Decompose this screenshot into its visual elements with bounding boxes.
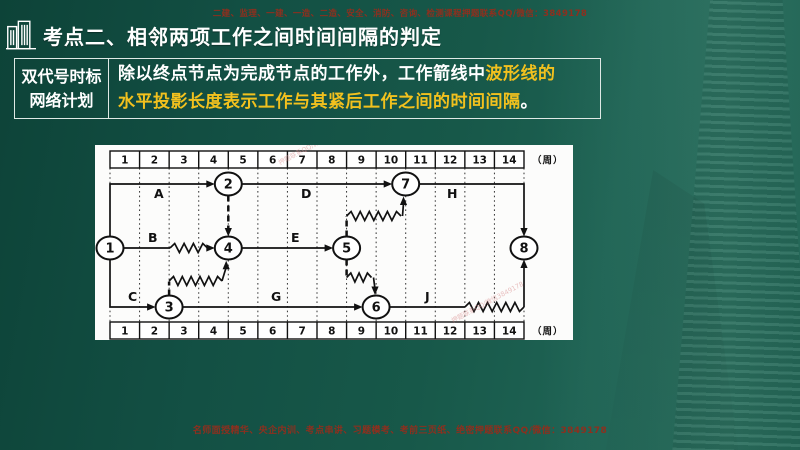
week-number: 5 [239,155,246,167]
node-number-1: 1 [105,242,114,257]
node-number-7: 7 [401,178,410,193]
week-number: 13 [472,155,487,167]
edge-E [242,244,333,251]
week-number: 14 [502,155,517,167]
week-number: 3 [180,326,187,338]
arrowhead-icon [354,303,363,310]
definition-line1: 除以终点节点为完成节点的工作外，工作箭线中波形线的 [118,61,591,89]
arrowhead-icon [325,244,334,251]
network-diagram-panel: 1234567891011121314（周）123456789101112131… [95,145,573,340]
node-number-2: 2 [224,178,233,193]
definition-line2-highlight: 水平投影长度表示工作与其紧后工作之间的时间间隔 [118,92,521,112]
edge-link-3-4 [169,261,230,296]
week-number: 11 [413,326,428,338]
activity-label-B: B [148,230,158,245]
definition-line2: 水平投影长度表示工作与其紧后工作之间的时间间隔。 [118,89,591,117]
week-number: 5 [239,326,246,338]
arrowhead-icon [371,287,378,296]
week-number: 14 [502,326,517,338]
activity-label-A: A [154,186,164,201]
definition-cell: 除以终点节点为完成节点的工作外，工作箭线中波形线的 水平投影长度表示工作与其紧后… [109,59,600,118]
definition-line2-period: 。 [521,92,539,112]
unit-label: （周） [532,326,564,338]
definition-line1-plain: 除以终点节点为完成节点的工作外，工作箭线中 [118,64,486,84]
arrowhead-icon [206,244,215,251]
definition-line1-highlight: 波形线的 [486,64,556,84]
arrowhead-icon [206,180,215,187]
week-number: 12 [443,326,458,338]
week-number: 4 [210,155,217,167]
week-number: 10 [384,326,399,338]
week-number: 13 [472,326,487,338]
term-line1: 双代号时标 [21,65,101,88]
week-number: 1 [121,326,128,338]
term-cell: 双代号时标 网络计划 [15,59,109,118]
node-number-4: 4 [224,242,233,257]
page-title: 考点二、相邻两项工作之间时间间隔的判定 [43,21,442,50]
header: 考点二、相邻两项工作之间时间间隔的判定 [6,18,442,52]
activity-label-J: J [424,289,430,304]
node-number-3: 3 [165,301,174,316]
activity-label-C: C [128,289,137,304]
time-scale-bottom: 1234567891011121314（周） [110,322,564,339]
week-number: 7 [299,326,306,338]
activity-label-H: H [447,186,457,201]
time-scaled-network-diagram: 1234567891011121314（周）123456789101112131… [95,145,573,340]
edges [110,180,528,311]
week-number: 6 [269,326,276,338]
arrowhead-icon [147,303,156,310]
week-number: 6 [269,155,276,167]
term-line2: 网络计划 [29,89,93,112]
week-number: 1 [121,155,128,167]
week-number: 8 [328,155,335,167]
week-number: 2 [151,155,158,167]
activity-label-G: G [271,289,281,304]
node-number-5: 5 [342,242,351,257]
week-number: 10 [384,155,399,167]
edge-G [183,303,363,310]
edge-link-5-7 [347,197,408,237]
week-number: 4 [210,326,217,338]
week-number: 2 [151,326,158,338]
arrowhead-icon [520,260,527,269]
node-number-8: 8 [519,242,528,257]
arrowhead-icon [384,180,393,187]
edge-J [390,260,528,312]
arrowhead-icon [520,228,527,237]
definition-table: 双代号时标 网络计划 除以终点节点为完成节点的工作外，工作箭线中波形线的 水平投… [14,58,601,119]
week-number: 9 [358,326,365,338]
week-number: 12 [443,155,458,167]
arrowhead-icon [225,228,232,237]
watermarks: 押题联系QQ/微信3849178押题联系QQ/微信3849178 [277,145,525,325]
node-number-6: 6 [372,301,381,316]
buildings-icon [6,18,36,52]
activity-label-E: E [291,230,300,245]
watermark-text: 押题联系QQ/微信3849178 [450,279,525,325]
week-number: 9 [358,155,365,167]
unit-label: （周） [532,155,564,167]
time-scale-top: 1234567891011121314（周） [110,151,564,168]
activity-label-D: D [301,186,311,201]
edge-link-5-6 [347,260,379,296]
week-number: 11 [413,155,428,167]
week-number: 3 [180,155,187,167]
week-number: 8 [328,326,335,338]
footer-notice: 名师面授精华、央企内训、考点串讲、习题模考、考前三页纸、绝密押题联系QQ/微信：… [0,423,800,436]
